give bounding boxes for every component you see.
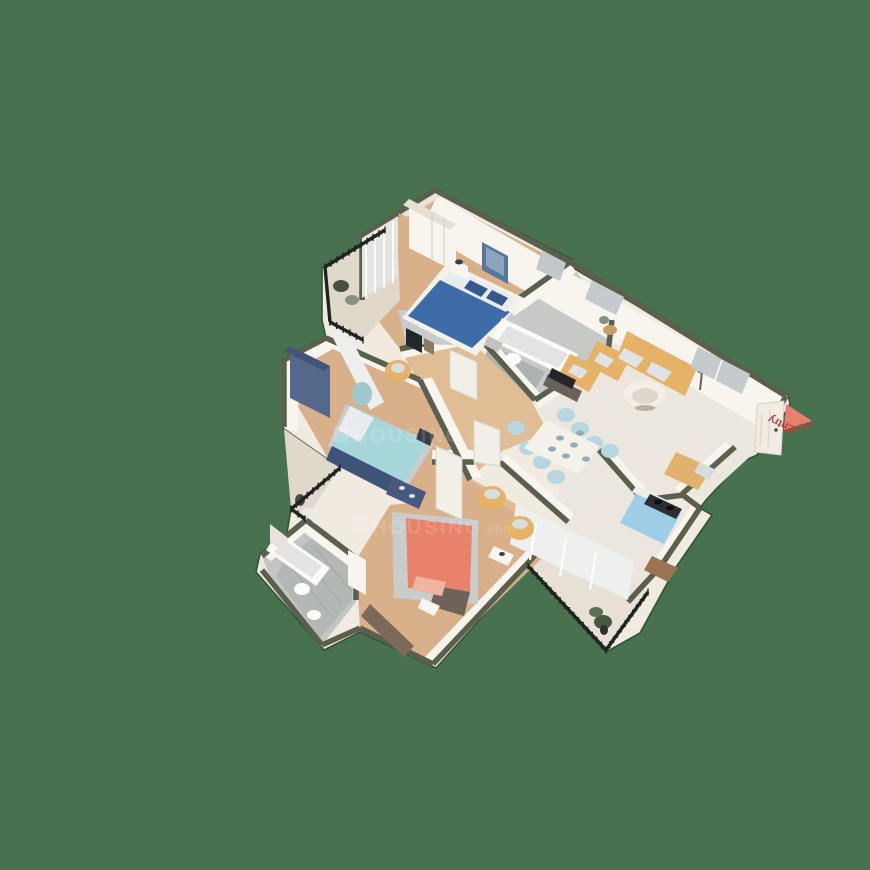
svg-text:HOUSING.com: HOUSING.com xyxy=(372,517,515,539)
svg-text:HOUSING.com: HOUSING.com xyxy=(353,425,496,447)
